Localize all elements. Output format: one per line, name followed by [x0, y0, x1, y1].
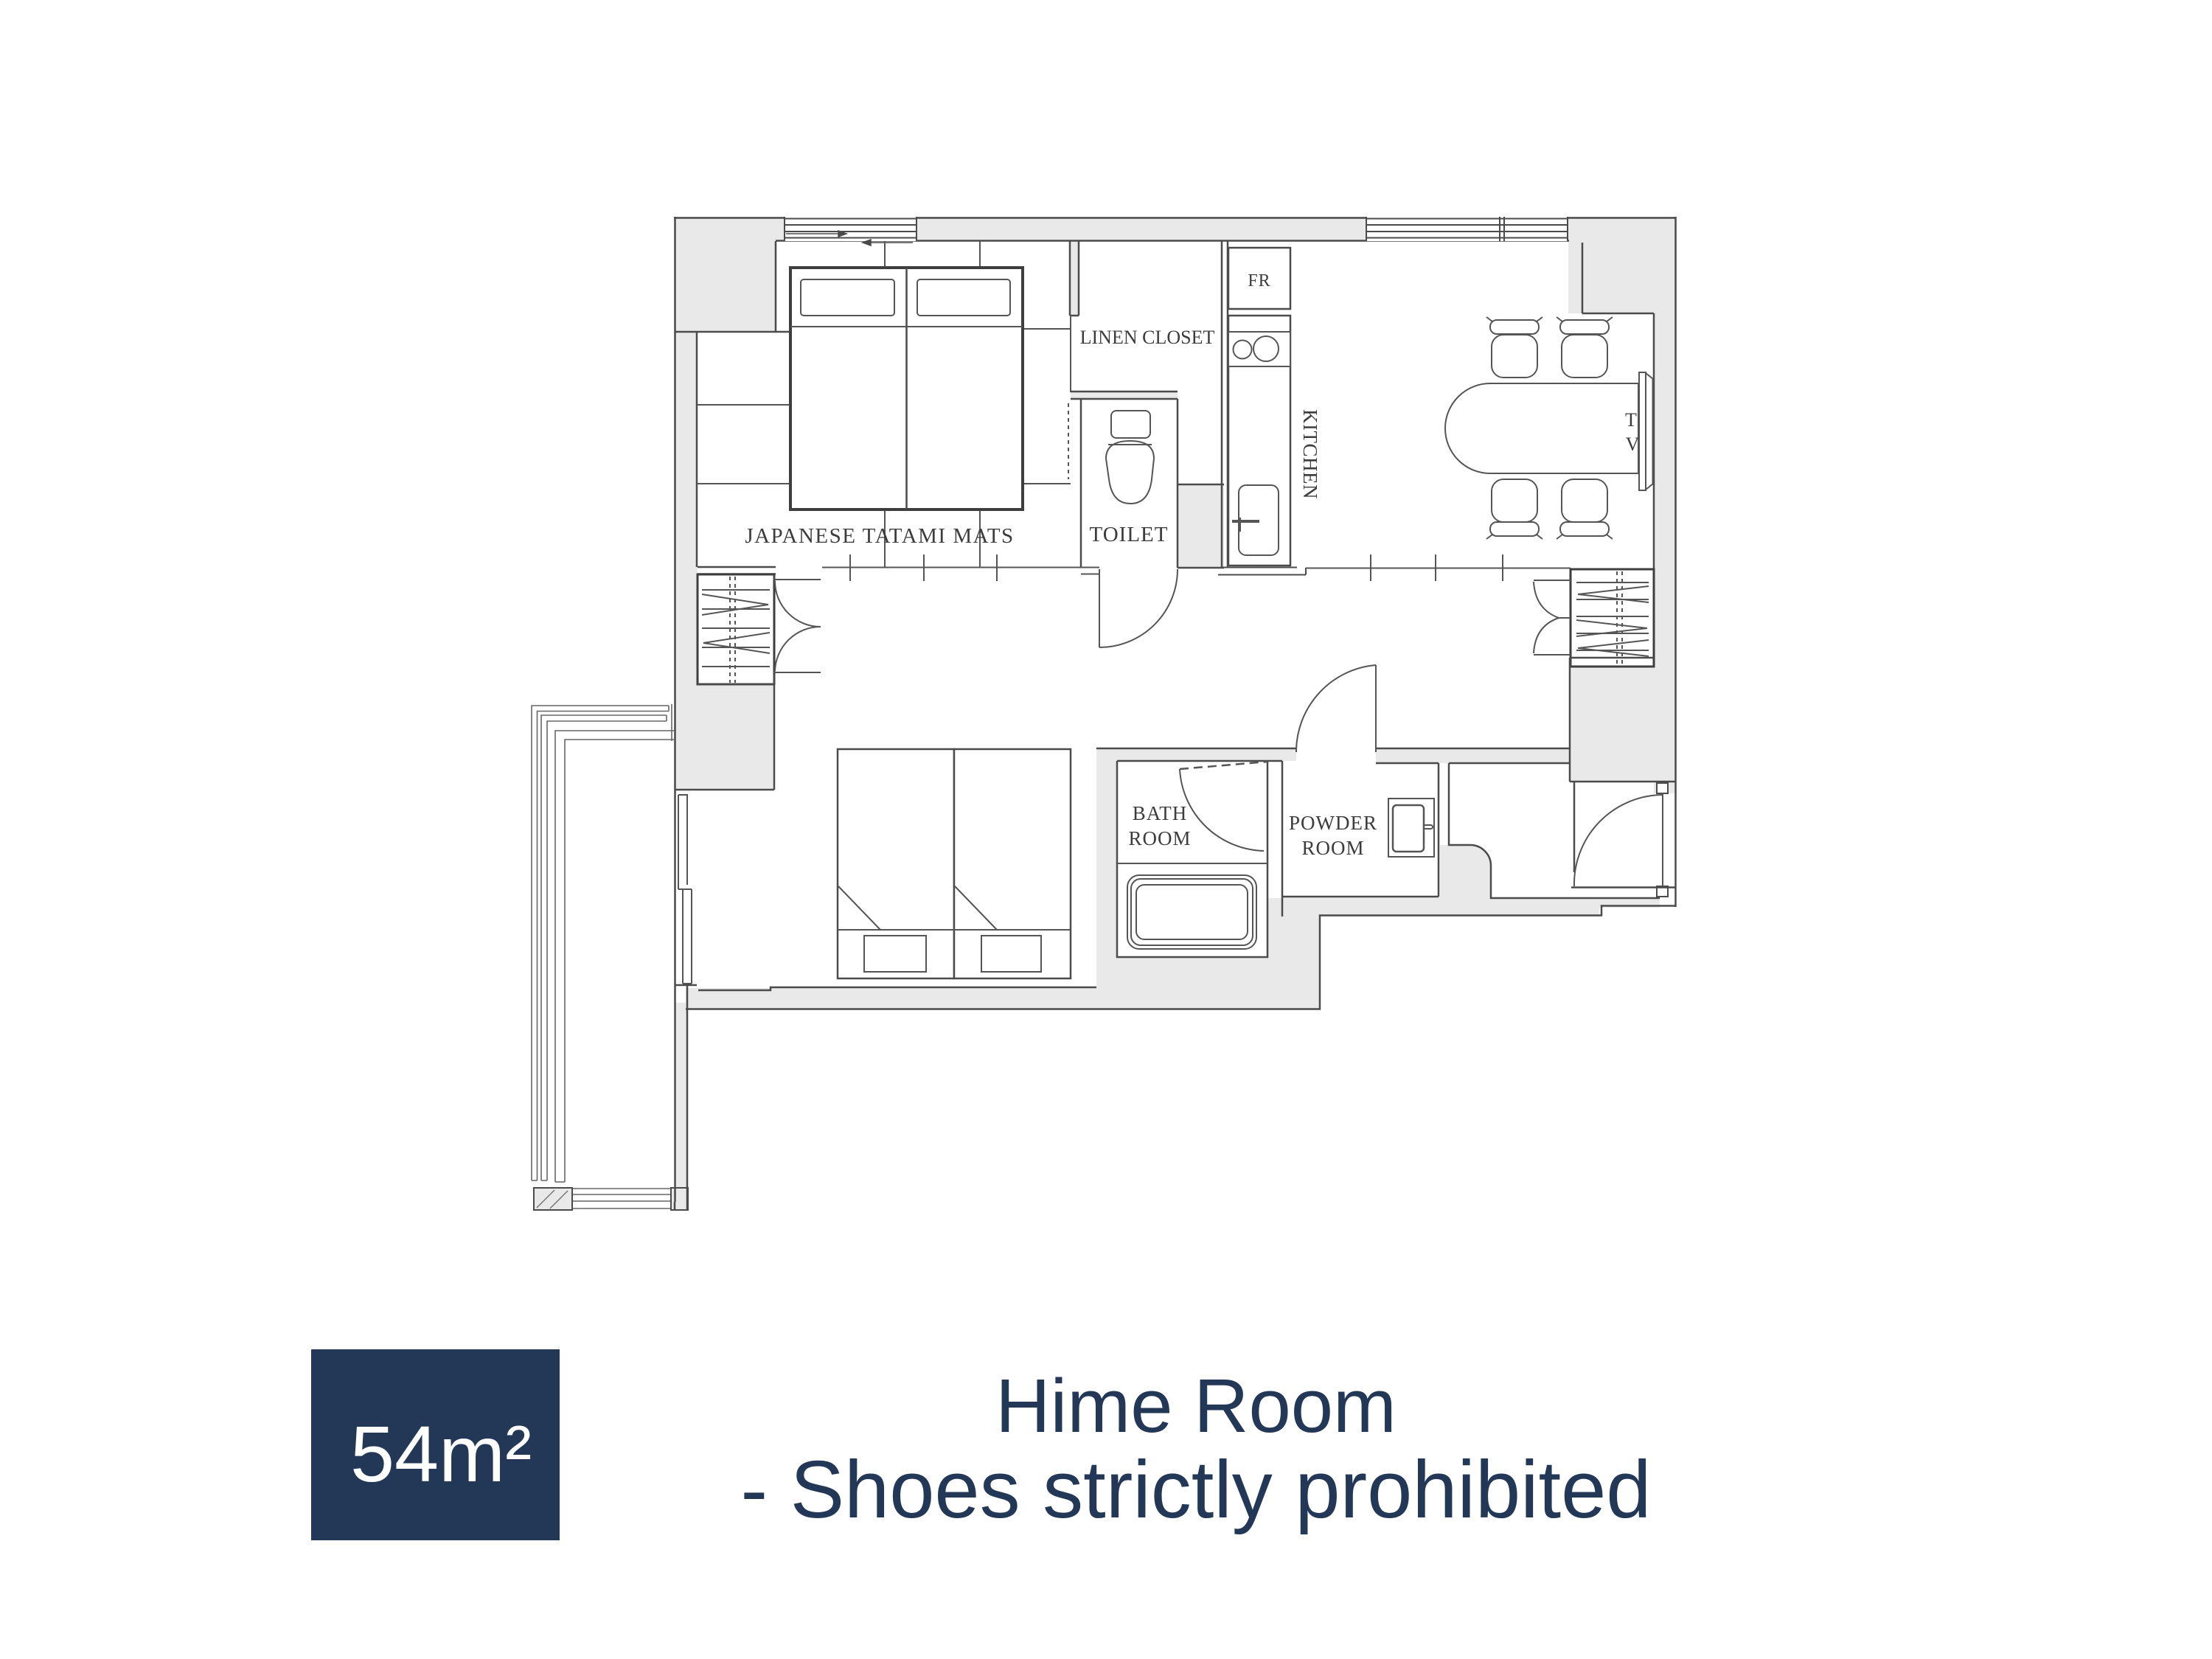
svg-text:BATH: BATH [1133, 802, 1188, 824]
svg-text:Hime Room: Hime Room [995, 1363, 1397, 1448]
svg-text:- Shoes strictly prohibited: - Shoes strictly prohibited [741, 1444, 1652, 1535]
svg-text:T: T [1625, 409, 1637, 431]
svg-text:V: V [1626, 434, 1640, 455]
svg-text:JAPANESE TATAMI MATS: JAPANESE TATAMI MATS [745, 524, 1014, 548]
svg-text:POWDER: POWDER [1289, 812, 1377, 834]
svg-text:TOILET: TOILET [1090, 523, 1169, 546]
svg-text:ROOM: ROOM [1128, 827, 1191, 849]
svg-text:54m²: 54m² [350, 1409, 532, 1498]
svg-text:LINEN CLOSET: LINEN CLOSET [1080, 327, 1215, 348]
svg-text:FR: FR [1248, 271, 1270, 291]
svg-text:KITCHEN: KITCHEN [1299, 409, 1321, 499]
svg-text:ROOM: ROOM [1301, 837, 1364, 859]
